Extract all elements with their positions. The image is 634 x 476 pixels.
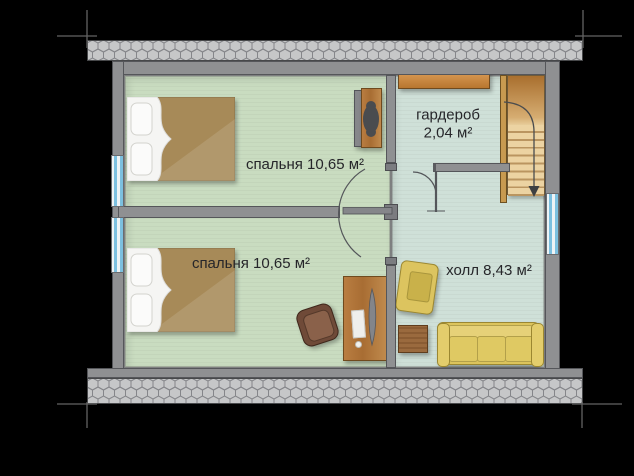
bedroom-2-label: спальня 10,65 м² [192,255,310,273]
plan-linework [0,0,634,476]
hall-label: холл 8,43 м² [446,262,532,280]
stairs-down-arrow [529,186,540,197]
stairs-walk-line [504,102,540,197]
bedroom-1-label: спальня 10,65 м² [246,156,364,174]
door-leaf-bedrooms [343,208,392,215]
wardrobe-label: гардероб 2,04 м² [416,106,480,141]
door-arc-wardrobe [413,172,436,194]
dimension-marks [57,10,622,428]
floor-plan: спальня 10,65 м² спальня 10,65 м² гардер… [0,0,634,476]
